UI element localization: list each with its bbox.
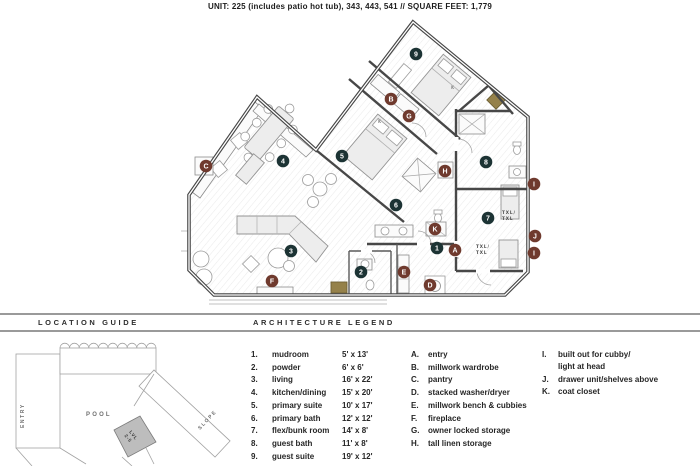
svg-text:6: 6 <box>394 203 398 210</box>
room-dimensions: 19' x 12' <box>342 451 373 464</box>
feature-marker-E: E <box>398 266 411 279</box>
svg-text:B: B <box>388 97 393 104</box>
feature-letter: K. <box>542 386 558 398</box>
feature-name: coat closet <box>558 386 658 398</box>
divider-line <box>0 330 700 332</box>
feature-name: light at head <box>558 361 658 373</box>
feature-name: stacked washer/dryer <box>428 387 527 400</box>
legend-feature-row: G.owner locked storage <box>411 425 527 438</box>
room-number: 2. <box>251 362 272 375</box>
feature-marker-A: A <box>449 244 462 257</box>
feature-letter: F. <box>411 413 428 426</box>
room-number: 7. <box>251 425 272 438</box>
feature-name: millwork wardrobe <box>428 362 527 375</box>
room-marker-4: 4 <box>277 155 290 168</box>
bunk-size-label: TXL <box>476 250 487 255</box>
feature-letter: G. <box>411 425 428 438</box>
bunk-size-label: TXL <box>502 216 513 221</box>
svg-text:J: J <box>533 234 537 241</box>
feature-name: fireplace <box>428 413 527 426</box>
svg-text:8: 8 <box>484 160 488 167</box>
feature-name: owner locked storage <box>428 425 527 438</box>
feature-letter: A. <box>411 349 428 362</box>
pool-label: POOL <box>86 412 112 418</box>
location-guide-map: ENTRY POOL SLOPE LVL 2-5 <box>2 336 246 466</box>
legend-room-row: 2.powder6' x 6' <box>251 362 373 375</box>
room-dimensions: 12' x 12' <box>342 413 373 426</box>
legend-feature-row: B.millwork wardrobe <box>411 362 527 375</box>
room-name: guest suite <box>272 451 342 464</box>
svg-text:2: 2 <box>359 270 363 277</box>
feature-name: built out for cubby/ <box>558 349 658 361</box>
floorplan-svg: 954321678ABCDEFGHIJIKTXL/TXLTXL/TXLKK <box>179 19 551 313</box>
unit-title: UNIT: 225 (includes patio hot tub), 343,… <box>0 2 700 11</box>
feature-letter: I. <box>542 349 558 361</box>
room-number: 1. <box>251 349 272 362</box>
svg-text:F: F <box>270 279 275 286</box>
legend-room-row: 1.mudroom5' x 13' <box>251 349 373 362</box>
feature-marker-I: I <box>528 178 541 191</box>
legend-feature-row: A.entry <box>411 349 527 362</box>
room-dimensions: 6' x 6' <box>342 362 373 375</box>
legend-feature-row: E.millwork bench & cubbies <box>411 400 527 413</box>
feature-marker-D: D <box>424 279 437 292</box>
svg-text:9: 9 <box>414 52 418 59</box>
feature-marker-C: C <box>200 160 213 173</box>
room-number: 6. <box>251 413 272 426</box>
divider-line <box>0 313 700 315</box>
room-name: flex/bunk room <box>272 425 342 438</box>
feature-name: drawer unit/shelves above <box>558 374 658 386</box>
legend-feature-row: I.built out for cubby/ <box>542 349 658 361</box>
room-dimensions: 5' x 13' <box>342 349 373 362</box>
room-name: primary suite <box>272 400 342 413</box>
svg-text:1: 1 <box>435 246 439 253</box>
room-name: guest bath <box>272 438 342 451</box>
legend-feature-row: light at head <box>542 361 658 373</box>
svg-text:E: E <box>402 270 407 277</box>
svg-text:7: 7 <box>486 216 490 223</box>
room-name: living <box>272 374 342 387</box>
room-marker-1: 1 <box>431 242 444 255</box>
legend-room-row: 8.guest bath11' x 8' <box>251 438 373 451</box>
room-dimensions: 14' x 8' <box>342 425 373 438</box>
room-number: 9. <box>251 451 272 464</box>
room-name: powder <box>272 362 342 375</box>
bunk-size-label: TXL/ <box>502 210 516 215</box>
room-name: primary bath <box>272 413 342 426</box>
floorplan-page: UNIT: 225 (includes patio hot tub), 343,… <box>0 0 700 466</box>
room-number: 8. <box>251 438 272 451</box>
room-marker-9: 9 <box>410 48 423 61</box>
svg-text:A: A <box>452 248 457 255</box>
feature-marker-I: I <box>528 247 541 260</box>
legend-feature-row: K.coat closet <box>542 386 658 398</box>
bunk-size-label: TXL/ <box>476 244 490 249</box>
feature-letter: E. <box>411 400 428 413</box>
feature-letter: C. <box>411 374 428 387</box>
legend-room-row: 4.kitchen/dining15' x 20' <box>251 387 373 400</box>
room-number: 5. <box>251 400 272 413</box>
svg-text:G: G <box>406 114 412 121</box>
legend-room-row: 9.guest suite19' x 12' <box>251 451 373 464</box>
side-table-round <box>284 261 295 272</box>
room-dimensions: 11' x 8' <box>342 438 373 451</box>
feature-marker-F: F <box>266 275 279 288</box>
feature-name: millwork bench & cubbies <box>428 400 527 413</box>
svg-text:4: 4 <box>281 159 285 166</box>
room-marker-5: 5 <box>336 150 349 163</box>
feature-marker-H: H <box>439 165 452 178</box>
svg-text:K: K <box>432 227 437 234</box>
legend-rooms-list: 1.mudroom5' x 13'2.powder6' x 6'3.living… <box>251 349 373 463</box>
legend-feature-row: D.stacked washer/dryer <box>411 387 527 400</box>
svg-text:5: 5 <box>340 154 344 161</box>
feature-marker-J: J <box>529 230 542 243</box>
room-marker-7: 7 <box>482 212 495 225</box>
svg-text:C: C <box>203 164 208 171</box>
room-name: kitchen/dining <box>272 387 342 400</box>
svg-text:H: H <box>442 169 447 176</box>
svg-text:I: I <box>533 182 535 189</box>
legend-room-row: 6.primary bath12' x 12' <box>251 413 373 426</box>
legend-features-list: A.entryB.millwork wardrobeC.pantryD.stac… <box>411 349 527 451</box>
feature-marker-G: G <box>403 110 416 123</box>
legend-features-right-list: I.built out for cubby/light at headJ.dra… <box>542 349 658 399</box>
room-number: 4. <box>251 387 272 400</box>
legend-feature-row: F.fireplace <box>411 413 527 426</box>
room-marker-8: 8 <box>480 156 493 169</box>
room-dimensions: 15' x 20' <box>342 387 373 400</box>
feature-marker-B: B <box>385 93 398 106</box>
armchair <box>193 251 209 267</box>
feature-letter <box>542 361 558 373</box>
gold-accent-cabinet <box>331 282 347 293</box>
svg-text:I: I <box>533 251 535 258</box>
building-footprint <box>16 343 230 466</box>
legend-room-row: 7.flex/bunk room14' x 8' <box>251 425 373 438</box>
legend-feature-row: H.tall linen storage <box>411 438 527 451</box>
room-number: 3. <box>251 374 272 387</box>
feature-marker-K: K <box>429 223 442 236</box>
feature-name: tall linen storage <box>428 438 527 451</box>
legend-room-row: 3.living16' x 22' <box>251 374 373 387</box>
svg-text:D: D <box>427 283 432 290</box>
location-guide-header: LOCATION GUIDE <box>38 318 139 327</box>
legend-feature-row: C.pantry <box>411 374 527 387</box>
room-marker-6: 6 <box>390 199 403 212</box>
entry-label: ENTRY <box>20 403 26 428</box>
room-marker-3: 3 <box>285 245 298 258</box>
architecture-legend-header: ARCHITECTURE LEGEND <box>253 318 395 327</box>
legend-feature-row: J.drawer unit/shelves above <box>542 374 658 386</box>
feature-name: pantry <box>428 374 527 387</box>
svg-text:3: 3 <box>289 249 293 256</box>
feature-letter: B. <box>411 362 428 375</box>
room-dimensions: 16' x 22' <box>342 374 373 387</box>
room-dimensions: 10' x 17' <box>342 400 373 413</box>
feature-name: entry <box>428 349 527 362</box>
feature-letter: H. <box>411 438 428 451</box>
room-marker-2: 2 <box>355 266 368 279</box>
feature-letter: D. <box>411 387 428 400</box>
room-name: mudroom <box>272 349 342 362</box>
feature-letter: J. <box>542 374 558 386</box>
legend-room-row: 5.primary suite10' x 17' <box>251 400 373 413</box>
